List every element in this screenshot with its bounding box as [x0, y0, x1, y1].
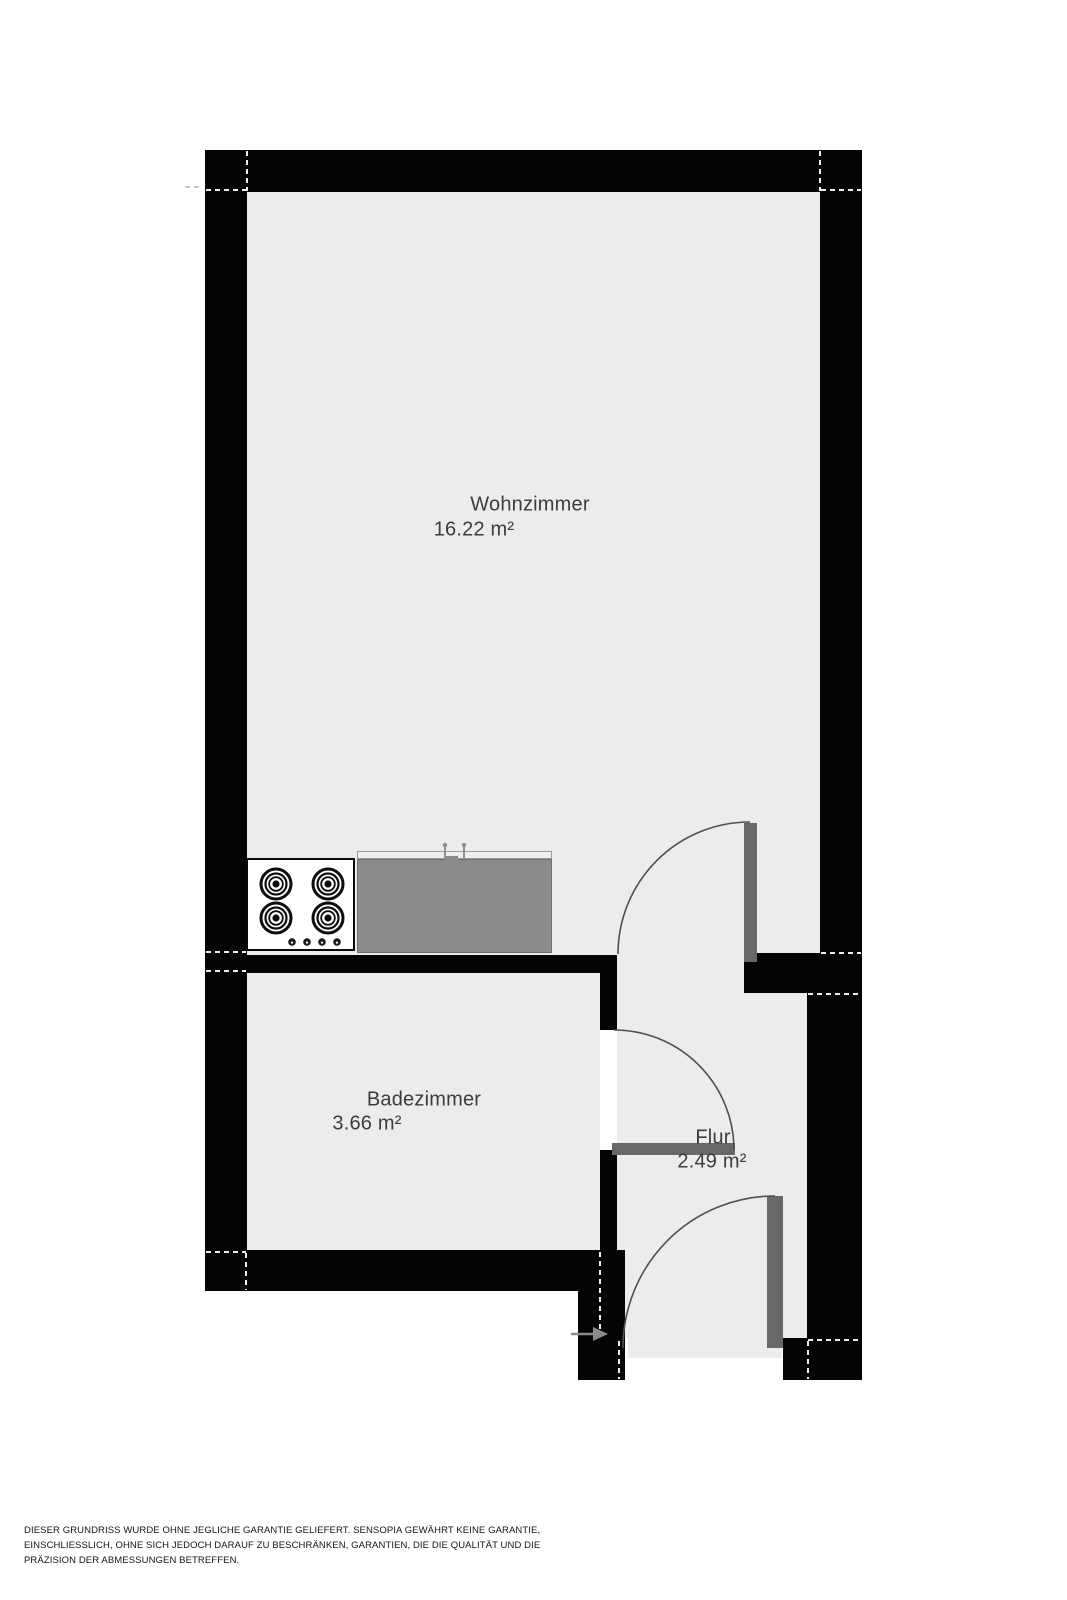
badezimmer-name-label: Badezimmer	[367, 1089, 481, 1112]
kitchen-counter	[357, 859, 552, 953]
wall-top	[205, 150, 862, 192]
badezimmer-area-label: 3.66 m²	[332, 1113, 401, 1136]
wohnzimmer-name-label: Wohnzimmer	[470, 494, 589, 517]
flur-name-label: Flur	[695, 1127, 730, 1150]
disclaimer-line: DIESER GRUNDRISS WURDE OHNE JEGLICHE GAR…	[24, 1523, 540, 1538]
wall-kitchen-divider	[205, 955, 617, 973]
flur-area-label: 2.49 m²	[677, 1151, 746, 1174]
wohnzimmer-door-leaf	[744, 823, 757, 962]
wall-vestibule-left	[578, 1291, 625, 1380]
entry-door-leaf	[767, 1196, 783, 1348]
entry-threshold	[628, 1338, 782, 1358]
disclaimer-line: EINSCHLIESSLICH, OHNE SICH JEDOCH DARAUF…	[24, 1538, 540, 1553]
stove-cooktop-icon	[246, 858, 355, 951]
wall-left	[205, 150, 247, 1291]
wall-bottom-right-block	[783, 1338, 862, 1380]
disclaimer-line: PRÄZISION DER ABMESSUNGEN BETREFFEN.	[24, 1553, 540, 1568]
wall-bath-bottom	[205, 1250, 625, 1291]
badezimmer-floor	[247, 973, 600, 1250]
disclaimer-text: DIESER GRUNDRISS WURDE OHNE JEGLICHE GAR…	[24, 1523, 540, 1568]
wall-flur-right	[807, 993, 862, 1338]
wohnzimmer-floor	[247, 192, 820, 955]
wohnzimmer-area-label: 16.22 m²	[434, 519, 515, 542]
floor-plan: Wohnzimmer 16.22 m² Badezimmer 3.66 m² F…	[0, 0, 1067, 1600]
wall-right-upper	[820, 150, 862, 953]
kitchen-counter-edge	[357, 851, 552, 859]
wall-block-mid-right	[744, 953, 862, 993]
wall-bath-right-upper	[600, 973, 617, 1030]
